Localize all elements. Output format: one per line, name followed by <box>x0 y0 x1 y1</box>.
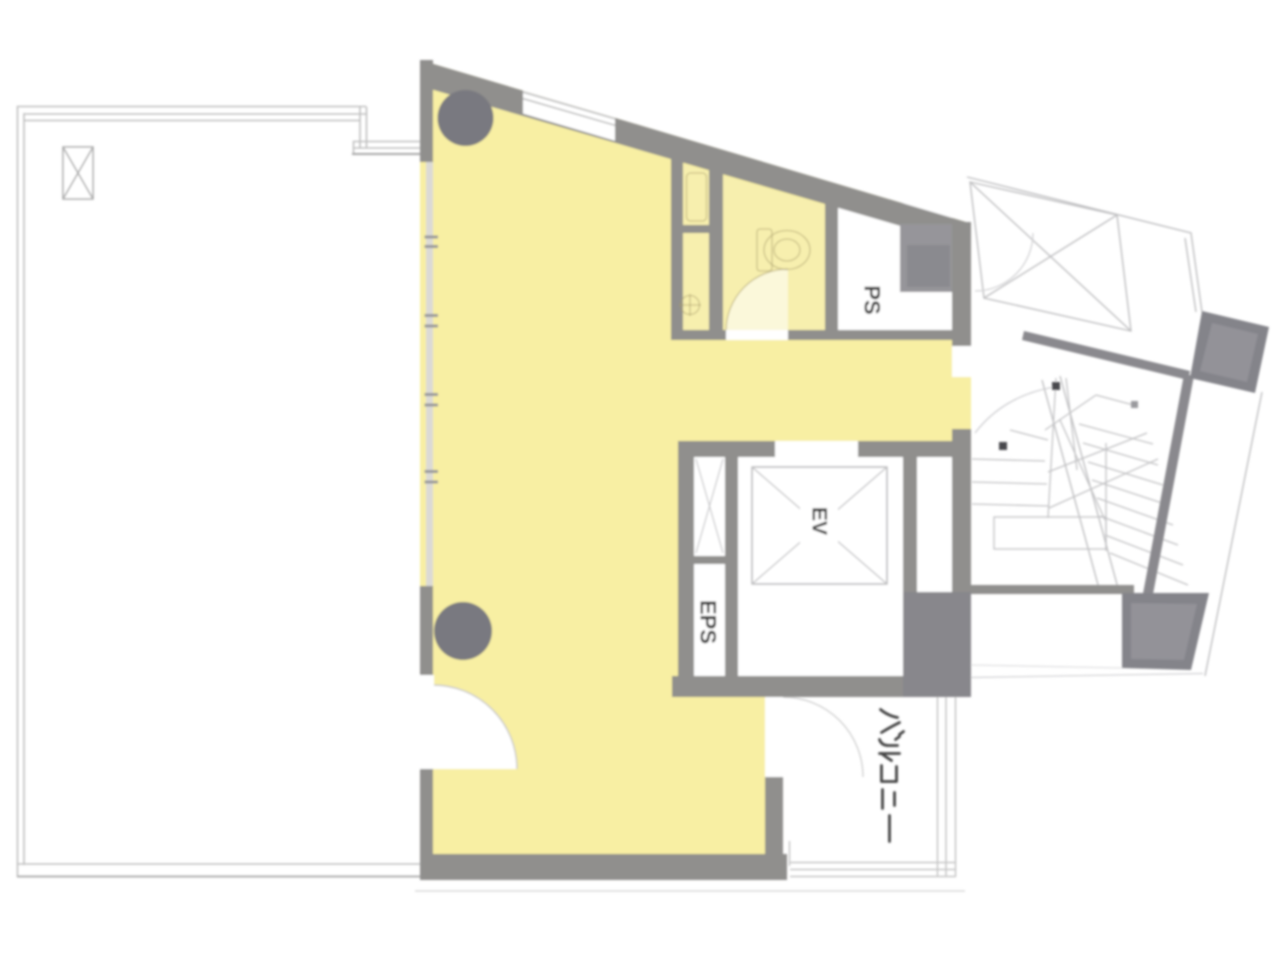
svg-text:EPS: EPS <box>696 600 721 644</box>
svg-text:EV: EV <box>808 507 831 535</box>
svg-text:PS: PS <box>860 285 885 314</box>
